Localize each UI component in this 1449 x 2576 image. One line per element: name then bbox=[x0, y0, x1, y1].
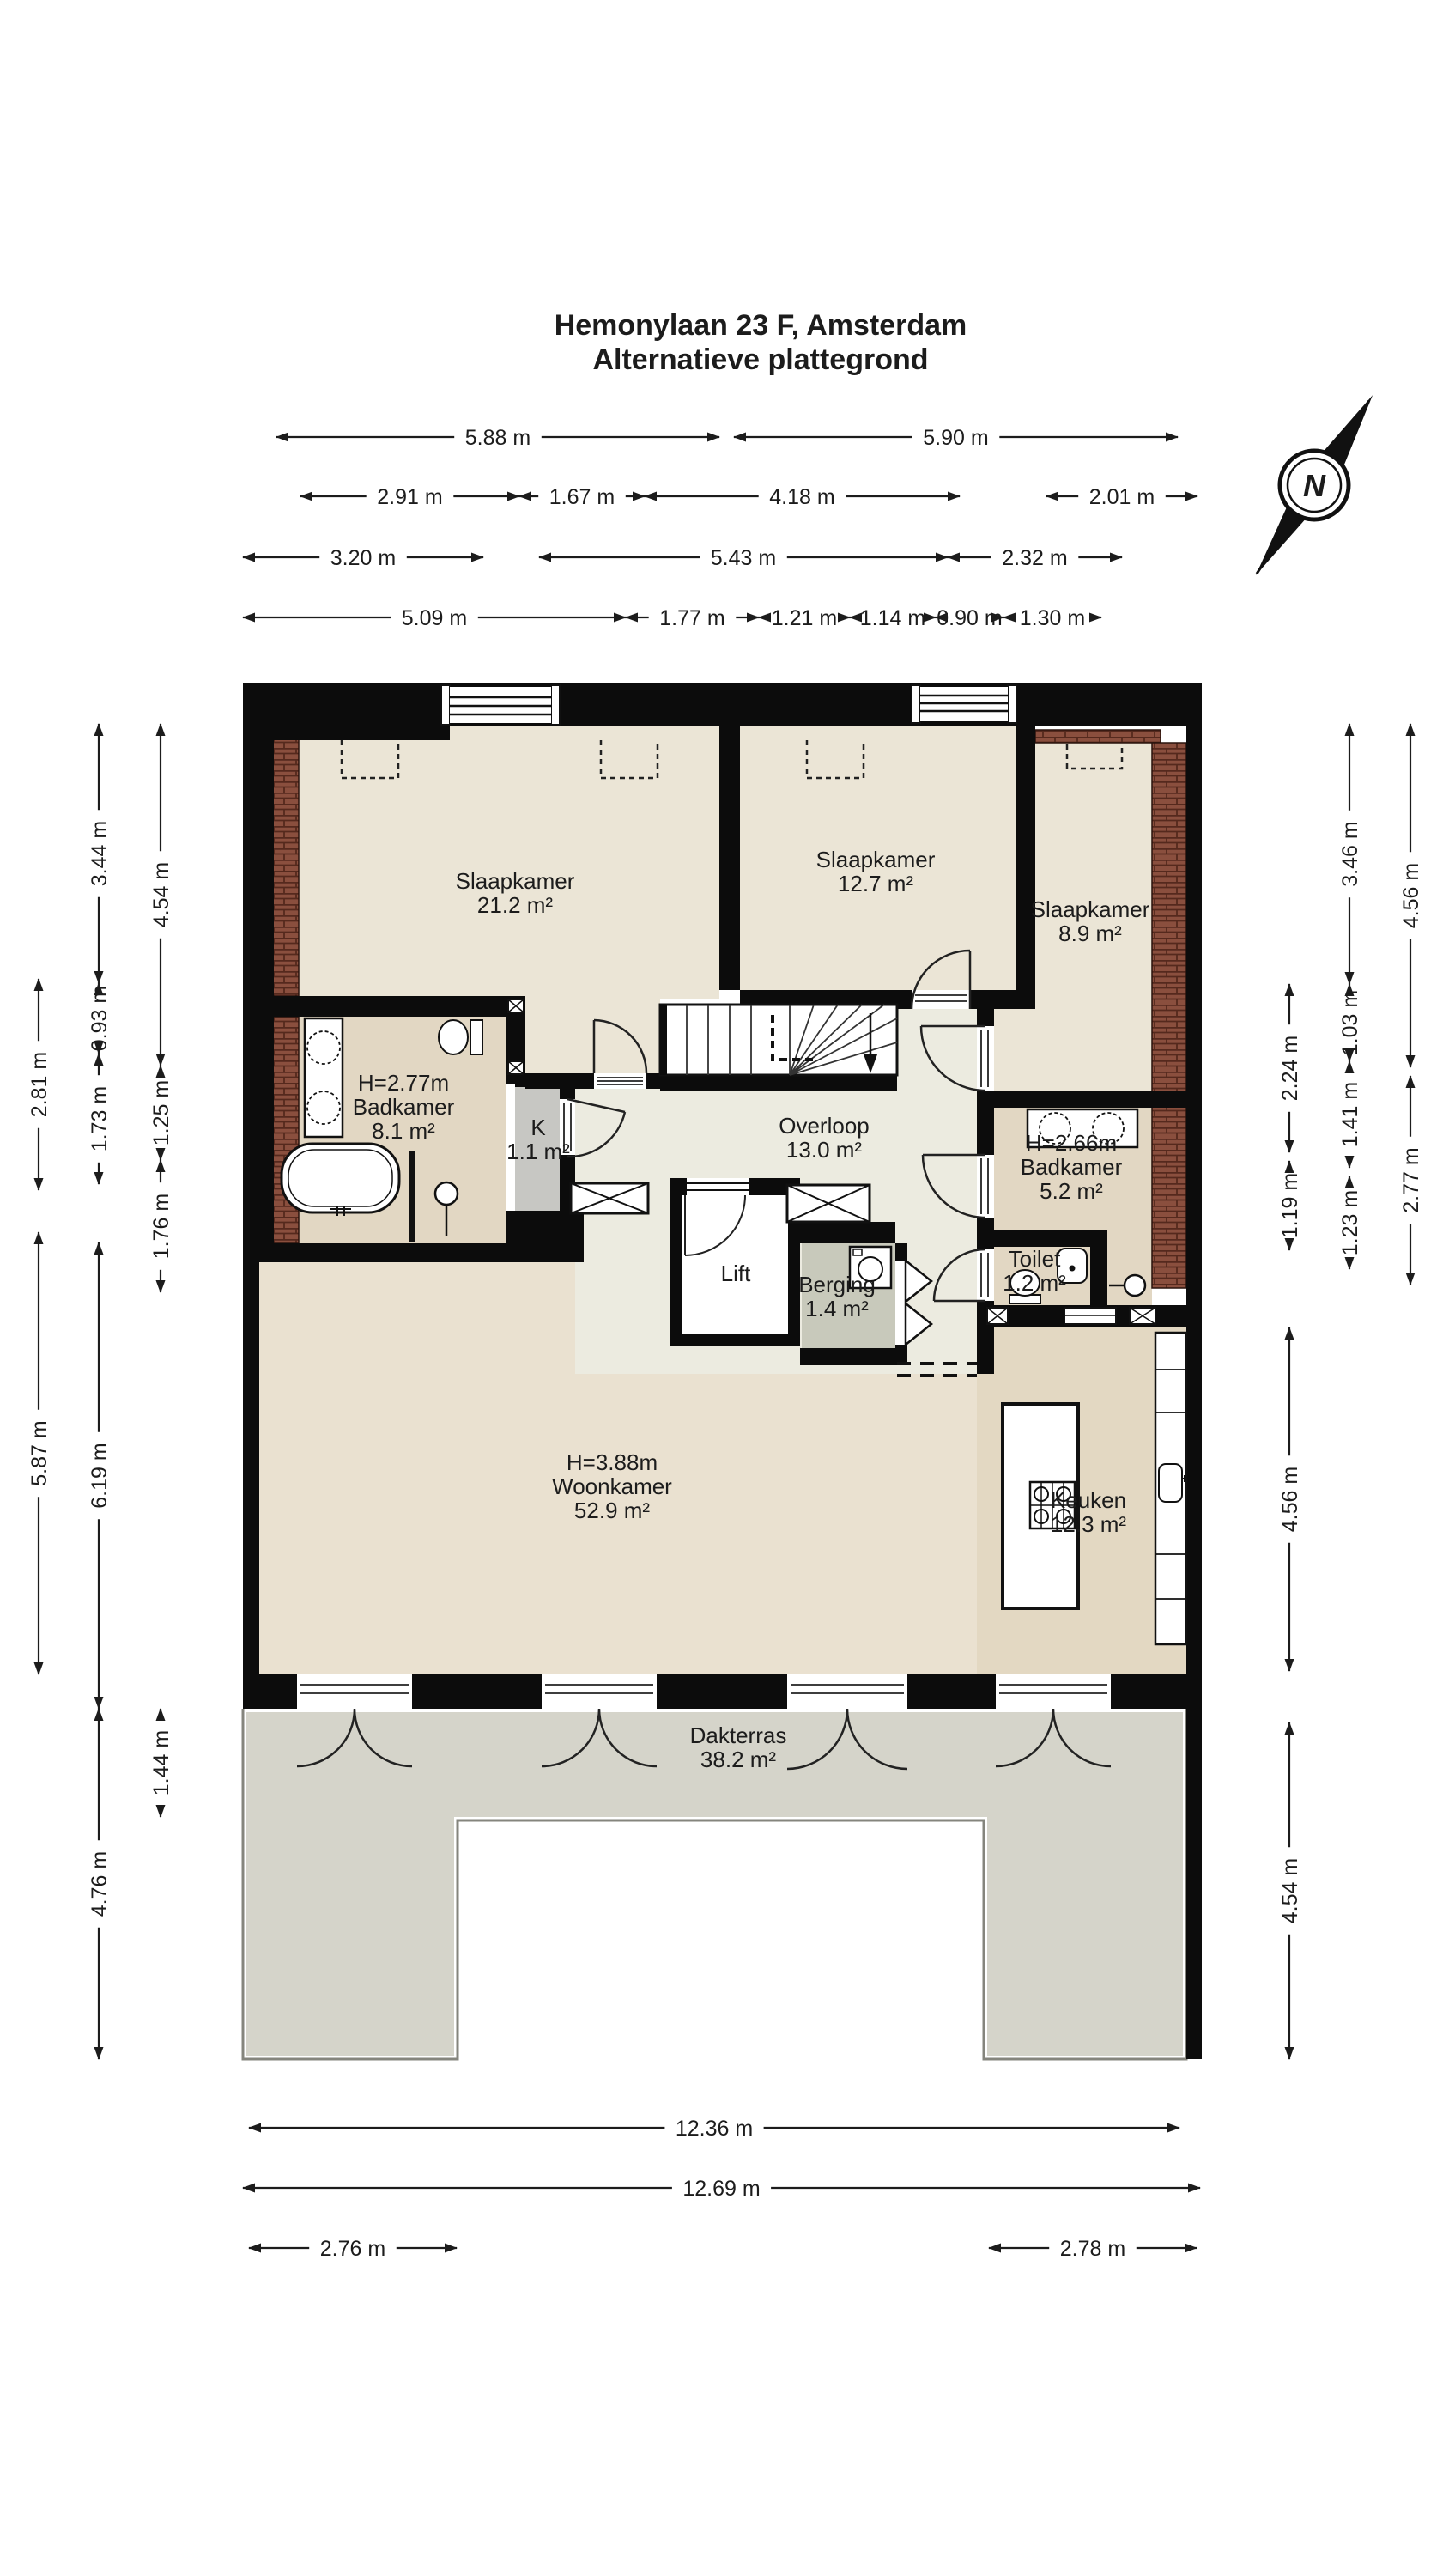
wall-toilet-top bbox=[977, 1230, 1107, 1247]
plan-title: Hemonylaan 23 F, Amsterdam bbox=[555, 309, 967, 342]
dimension-label: 6.19 m bbox=[88, 1443, 112, 1508]
wall-hall-right-a bbox=[977, 1009, 994, 1026]
bathtub-icon bbox=[282, 1144, 399, 1216]
wall-pillar-4 bbox=[907, 1674, 996, 1709]
floorplan-page: Hemonylaan 23 F, Amsterdam Alternatieve … bbox=[0, 0, 1449, 2576]
wall-bath1-bottom bbox=[243, 1243, 506, 1262]
room-label-toilet: Toilet1.2 m² bbox=[1003, 1246, 1066, 1296]
hall-top-arm-floor bbox=[897, 1009, 977, 1091]
dimension-label: 5.09 m bbox=[402, 606, 467, 630]
wall-storage-top bbox=[787, 1222, 895, 1243]
dimension-label: 3.44 m bbox=[88, 821, 112, 886]
dimension-label: 1.03 m bbox=[1338, 990, 1362, 1055]
vent-box-bath1-a bbox=[508, 999, 524, 1012]
dimension-label: 1.14 m bbox=[860, 606, 925, 630]
dimension-label: 5.90 m bbox=[923, 426, 988, 450]
wall-hall-right-b bbox=[977, 1091, 994, 1155]
wall-bath1-corner bbox=[506, 1211, 584, 1262]
dimension-label: 0.90 m bbox=[937, 606, 1002, 630]
dimension-label: 1.41 m bbox=[1338, 1082, 1362, 1147]
kitchen-sink-icon bbox=[1159, 1464, 1182, 1502]
wall-bath2-top bbox=[994, 1091, 1202, 1108]
wall-stairs-bottom bbox=[660, 1075, 897, 1091]
staircase bbox=[660, 1005, 897, 1075]
dimension-label: 4.18 m bbox=[769, 485, 834, 509]
wall-bed2-bed3 bbox=[1016, 726, 1035, 1009]
dimension-label: 4.54 m bbox=[1278, 1858, 1302, 1923]
dimension-label: 1.30 m bbox=[1020, 606, 1085, 630]
vent-box-bath1-b bbox=[508, 1061, 524, 1074]
floorplan-drawing: Hemonylaan 23 F, Amsterdam Alternatieve … bbox=[0, 0, 1449, 2576]
dimension-label: 4.76 m bbox=[88, 1851, 112, 1917]
dimension-label: 1.44 m bbox=[149, 1730, 173, 1795]
dimension-label: 1.21 m bbox=[772, 606, 837, 630]
window-top-1 bbox=[441, 685, 560, 725]
dimension-label: 1.25 m bbox=[149, 1080, 173, 1145]
room-label-berging: Berging1.4 m² bbox=[798, 1272, 876, 1321]
wall-pillar-1 bbox=[243, 1674, 297, 1709]
shaft-above-storage bbox=[787, 1185, 870, 1222]
wall-bed1-bottom bbox=[274, 996, 506, 1017]
dimension-label: 1.77 m bbox=[659, 606, 724, 630]
dimension-label: 2.32 m bbox=[1002, 546, 1067, 570]
dimension-label: 4.56 m bbox=[1399, 863, 1423, 928]
dimension-label: 5.43 m bbox=[711, 546, 776, 570]
toilet-1-icon bbox=[439, 1020, 482, 1054]
dimension-label: 12.36 m bbox=[676, 2117, 753, 2141]
window-top-2 bbox=[912, 685, 1016, 723]
lift-door bbox=[687, 1178, 749, 1195]
plan-subtitle: Alternatieve plattegrond bbox=[592, 343, 928, 376]
wall-pillar-5 bbox=[1111, 1674, 1202, 1709]
brick-band-right bbox=[1152, 743, 1186, 1288]
shaft-left-of-lift bbox=[571, 1183, 648, 1213]
dimension-label: 2.24 m bbox=[1278, 1036, 1302, 1101]
wall-left-lower bbox=[243, 1262, 259, 1674]
wall-storage-right-a bbox=[895, 1243, 907, 1261]
wall-storage-bottom bbox=[800, 1348, 895, 1365]
wall-top-left-block bbox=[243, 683, 450, 740]
dimension-label: 1.19 m bbox=[1278, 1173, 1302, 1238]
dimension-label: 1.23 m bbox=[1338, 1190, 1362, 1255]
vent-box-wing-b bbox=[1130, 1308, 1155, 1324]
dimension-label: 2.81 m bbox=[27, 1052, 52, 1117]
dimension-label: 3.20 m bbox=[330, 546, 396, 570]
kitchen-counter bbox=[1155, 1333, 1187, 1644]
dimension-label: 0.93 m bbox=[88, 986, 112, 1051]
compass: N bbox=[1242, 386, 1391, 587]
dimension-label: 3.46 m bbox=[1338, 821, 1362, 886]
wall-left bbox=[243, 683, 274, 1262]
wall-pillar-2 bbox=[412, 1674, 542, 1709]
compass-north-label: N bbox=[1303, 468, 1326, 503]
dimension-label: 5.87 m bbox=[27, 1420, 52, 1485]
wall-bed1-bed2 bbox=[719, 726, 740, 990]
dimension-label: 1.73 m bbox=[88, 1086, 112, 1151]
vanity-counter-1 bbox=[305, 1018, 343, 1137]
dimension-label: 1.76 m bbox=[149, 1194, 173, 1259]
dimension-label: 2.77 m bbox=[1399, 1147, 1423, 1212]
dimension-label: 2.76 m bbox=[320, 2237, 385, 2261]
wall-k-right-a bbox=[560, 1084, 575, 1099]
room-label-lift: Lift bbox=[721, 1261, 751, 1286]
cabinet-slot-wing bbox=[1064, 1308, 1116, 1324]
dimension-label: 12.69 m bbox=[682, 2177, 760, 2201]
wall-right bbox=[1186, 683, 1202, 2059]
dimension-label: 5.88 m bbox=[465, 426, 530, 450]
dimension-label: 2.01 m bbox=[1089, 485, 1155, 509]
wall-pillar-3 bbox=[657, 1674, 787, 1709]
wall-toilet-right bbox=[1090, 1247, 1107, 1305]
room-label-overloop: Overloop13.0 m² bbox=[779, 1113, 870, 1163]
wall-bed2-bottom-b bbox=[970, 990, 1016, 1009]
dimension-label: 1.67 m bbox=[549, 485, 615, 509]
brick-band-top-right bbox=[1035, 730, 1161, 743]
dimension-label: 4.54 m bbox=[149, 862, 173, 927]
room-label-dakterras: Dakterras38.2 m² bbox=[690, 1722, 787, 1772]
dimension-label: 2.78 m bbox=[1060, 2237, 1125, 2261]
dimension-label: 2.91 m bbox=[377, 485, 442, 509]
vent-box-wing-a bbox=[987, 1308, 1008, 1324]
dimension-label: 4.56 m bbox=[1278, 1467, 1302, 1532]
room-label-keuken: Keuken12.3 m² bbox=[1051, 1487, 1127, 1537]
